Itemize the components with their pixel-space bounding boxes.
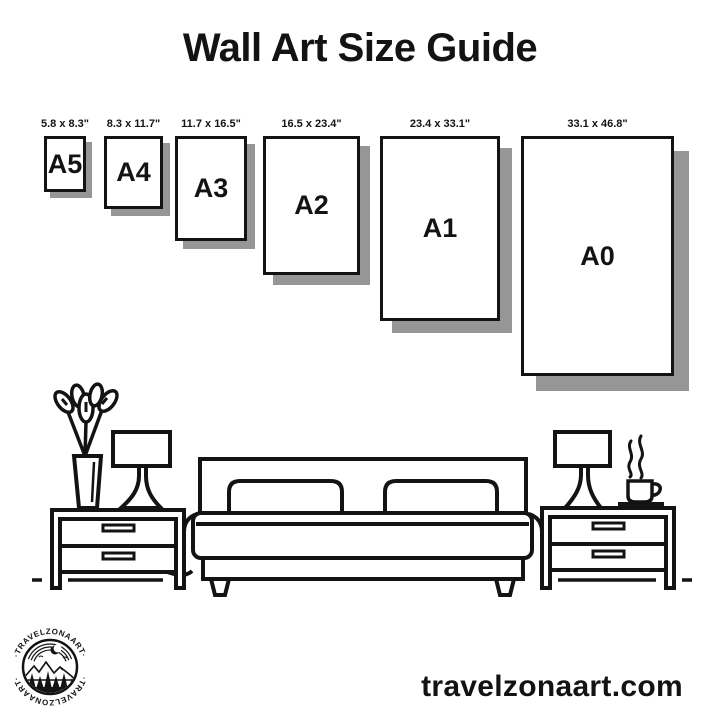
- size-dimensions-label: 23.4 x 33.1": [410, 117, 470, 133]
- size-box: A1: [380, 136, 500, 321]
- size-box: A2: [263, 136, 360, 275]
- bedroom-illustration: [0, 380, 720, 610]
- vase-plant-icon: [51, 383, 120, 508]
- size-comparison-chart: 5.8 x 8.3" A5 8.3 x 11.7" A4 11.7 x 16.5…: [0, 0, 720, 400]
- website-url: travelzonaart.com: [398, 670, 706, 704]
- size-dimensions-label: 16.5 x 23.4": [281, 117, 341, 133]
- size-box: A4: [104, 136, 163, 209]
- right-nightstand-icon: [542, 508, 674, 588]
- size-dimensions-label: 11.7 x 16.5": [181, 117, 241, 133]
- size-item-a1: 23.4 x 33.1" A1: [380, 117, 500, 321]
- double-bed-icon: [174, 459, 551, 595]
- size-name-label: A3: [194, 173, 229, 204]
- right-lamp-icon: [555, 432, 610, 508]
- size-box: A3: [175, 136, 247, 241]
- size-item-a5: 5.8 x 8.3" A5: [44, 117, 86, 192]
- size-dimensions-label: 8.3 x 11.7": [107, 117, 161, 133]
- size-dimensions-label: 5.8 x 8.3": [41, 117, 89, 133]
- brand-logo: ·TRAVELZONAART· ·TRAVELZONAART·: [8, 621, 94, 713]
- size-item-a3: 11.7 x 16.5" A3: [175, 117, 247, 241]
- size-item-a2: 16.5 x 23.4" A2: [263, 117, 360, 275]
- coffee-cup-icon: [618, 436, 664, 504]
- size-name-label: A2: [294, 190, 329, 221]
- size-box: A5: [44, 136, 86, 192]
- size-box: A0: [521, 136, 674, 376]
- wall-art-size-guide-page: Wall Art Size Guide 5.8 x 8.3" A5 8.3 x …: [0, 0, 720, 720]
- left-lamp-icon: [113, 432, 170, 508]
- size-item-a4: 8.3 x 11.7" A4: [104, 117, 163, 209]
- left-nightstand-icon: [52, 510, 184, 588]
- size-dimensions-label: 33.1 x 46.8": [567, 117, 627, 133]
- size-name-label: A4: [116, 157, 151, 188]
- size-item-a0: 33.1 x 46.8" A0: [521, 117, 674, 376]
- size-name-label: A1: [423, 213, 458, 244]
- size-name-label: A5: [48, 149, 83, 180]
- size-name-label: A0: [580, 241, 615, 272]
